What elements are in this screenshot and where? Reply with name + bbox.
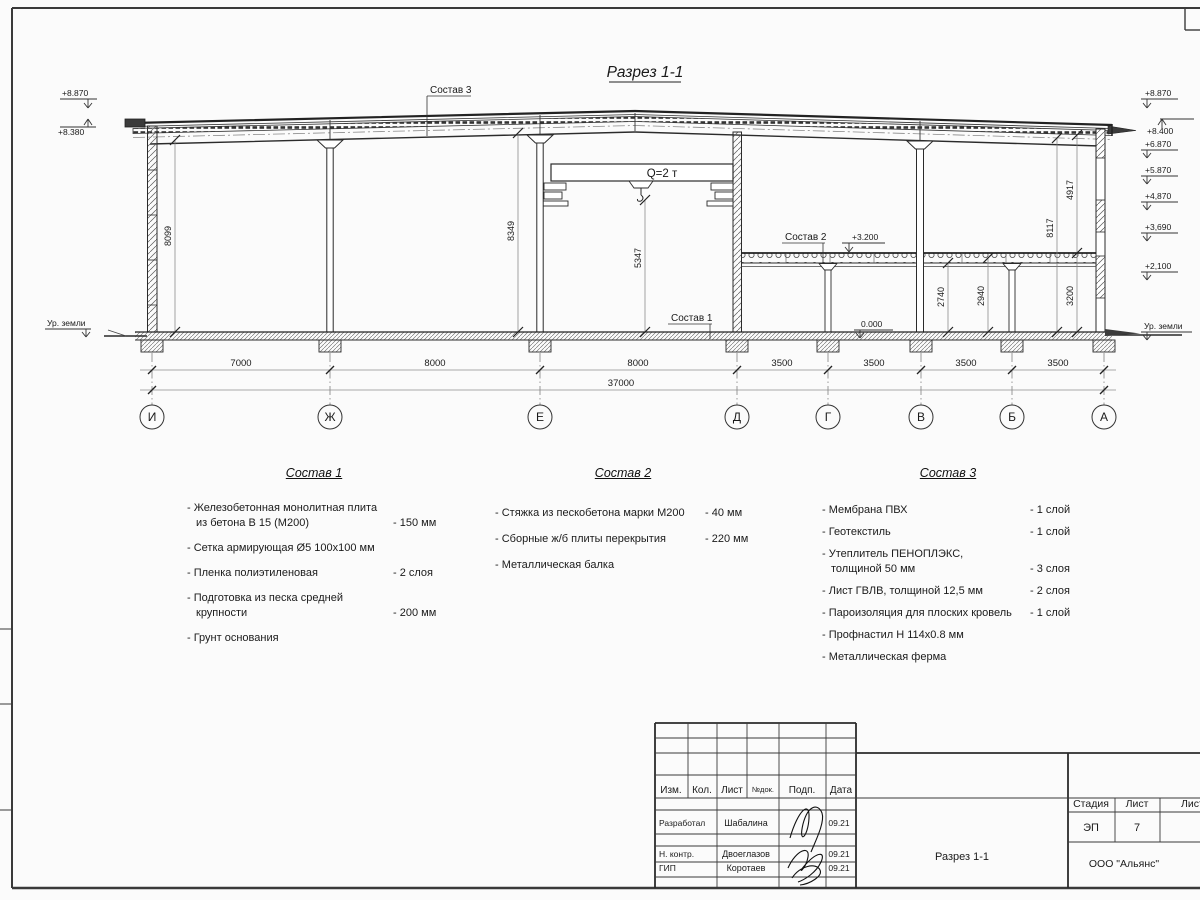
axis-label-e: Е — [536, 410, 544, 424]
elevation-marks-left: +8.870 +8.380 Ур. земли — [45, 88, 97, 337]
wall-axis-d — [733, 132, 742, 332]
axis-label-i: И — [148, 410, 157, 424]
crane-capacity-label: Q=2 т — [647, 168, 678, 180]
stamp-header-row: Изм. Кол. Лист №док. Подп. Дата — [660, 785, 852, 796]
section-view: Разрез 1-1 — [45, 64, 1194, 429]
stamp-doc-title: Разрез 1-1 — [935, 851, 989, 863]
signature-developer — [790, 807, 823, 852]
stamp-role-ncontrol: Н. контр. — [659, 849, 694, 859]
list-item: - Профнастил Н 114х0.8 мм — [820, 628, 1076, 643]
column-axis-v — [917, 149, 924, 332]
axis-label-v: В — [917, 410, 925, 424]
vertical-dimensions: 8099 8349 5347 2740 2940 3200 8117 4917 — [163, 128, 1082, 337]
list-item: - Металлическая балка — [493, 558, 753, 573]
mark-left-8870: +8.870 — [62, 88, 89, 98]
column-axis-zh — [327, 148, 333, 332]
mark-right-8870: +8.870 — [1145, 88, 1172, 98]
axis-label-b: Б — [1008, 410, 1016, 424]
dim-8349: 8349 — [506, 221, 516, 241]
axis-bubbles — [140, 405, 1116, 429]
dim-3200: 3200 — [1065, 286, 1075, 306]
foundation-pads — [141, 340, 1115, 352]
stamp-date-ncontrol: 09.21 — [828, 849, 850, 859]
floor — [104, 329, 1182, 352]
corner-box — [1185, 8, 1200, 30]
dim-4917: 4917 — [1065, 180, 1075, 200]
mark-floor-0000: 0.000 — [861, 319, 883, 329]
mark-left-8380: +8.380 — [58, 127, 85, 137]
roof — [125, 111, 1136, 146]
stamp-col-list: Лист — [721, 785, 743, 796]
composition-list-2: Состав 2 - Стяжка из пескобетона марки М… — [493, 466, 753, 573]
walls — [148, 126, 1106, 332]
span-total-37000: 37000 — [608, 378, 634, 389]
list-item: - Геотекстиль- 1 слой — [820, 525, 1076, 540]
list-item: - Утеплитель ПЕНОПЛЭКС, — [820, 547, 1076, 562]
dim-8099: 8099 — [163, 226, 173, 246]
mark-right-4870: +4,870 — [1145, 191, 1172, 201]
stamp-col-data: Дата — [830, 785, 853, 796]
axis-label-zh: Ж — [324, 410, 335, 424]
stamp-col-ndok: №док. — [752, 785, 774, 794]
stamp-company: ООО "Альянс" — [1089, 858, 1159, 870]
stamp-role-gip: ГИП — [659, 863, 676, 873]
mark-right-2100: +2,100 — [1145, 261, 1172, 271]
list-item: - Лист ГВЛВ, толщиной 12,5 мм- 2 слоя — [820, 584, 1076, 599]
mark-right-5870: +5.870 — [1145, 165, 1172, 175]
mark-right-8400: +8.400 — [1147, 126, 1174, 136]
stamp-sheets-label: Листов — [1181, 798, 1200, 810]
signature-ncontrol-gip — [788, 850, 822, 885]
stamp-stage-value: ЭП — [1083, 822, 1099, 834]
page-title: Разрез 1-1 — [607, 64, 684, 81]
stamp-name-ncontrol: Двоеглазов — [722, 849, 770, 859]
wall-axis-i — [148, 126, 158, 332]
dimension-chain: 7000 8000 8000 3500 3500 3500 3500 37000… — [140, 353, 1116, 429]
stamp-date-gip: 09.21 — [828, 863, 850, 873]
list-item: - Металлическая ферма — [820, 650, 1076, 665]
span-8000-1: 8000 — [424, 358, 445, 369]
callout-sostav-2: Состав 2 — [785, 232, 827, 243]
span-3500-3: 3500 — [955, 358, 976, 369]
stamp-col-izm: Изм. — [660, 785, 681, 796]
list-item: - Стяжка из пескобетона марки М200- 40 м… — [493, 506, 753, 521]
dim-2740: 2740 — [936, 287, 946, 307]
mark-slab-3200: +3.200 — [852, 232, 879, 242]
list-item: из бетона В 15 (М200)- 150 мм — [185, 516, 443, 531]
span-3500-1: 3500 — [771, 358, 792, 369]
mark-left-ground: Ур. земли — [47, 318, 86, 328]
list-item: - Железобетонная монолитная плита — [185, 501, 443, 516]
list-item: крупности- 200 мм — [185, 606, 443, 621]
list-item: - Грунт основания — [185, 631, 443, 646]
stamp-col-kol: Кол. — [692, 785, 712, 796]
stamp-date-developer: 09.21 — [828, 818, 850, 828]
stamp-sheet-label: Лист — [1126, 798, 1149, 810]
stamp-role-developer: Разработал — [659, 818, 705, 828]
stamp-name-gip: Коротаев — [727, 863, 766, 873]
span-7000: 7000 — [230, 358, 251, 369]
list-item: - Мембрана ПВХ- 1 слой — [820, 503, 1076, 518]
axis-label-a: А — [1100, 410, 1108, 424]
dim-5347: 5347 — [633, 248, 643, 268]
column-axis-b — [1009, 270, 1015, 332]
stamp-name-developer: Шабалина — [724, 818, 767, 828]
elevation-marks-internal: +3.200 0.000 — [842, 232, 893, 338]
drawing-sheet: Разрез 1-1 — [0, 0, 1200, 900]
mark-right-3690: +3,690 — [1145, 222, 1172, 232]
sheet-frame — [0, 8, 1200, 888]
composition-list-1: Состав 1 - Железобетонная монолитная пли… — [185, 466, 443, 646]
list-item: - Сборные ж/б плиты перекрытия- 220 мм — [493, 532, 753, 547]
composition-2-title: Состав 2 — [493, 466, 753, 481]
list-item: - Пленка полиэтиленовая- 2 слоя — [185, 566, 443, 581]
composition-list-3: Состав 3 - Мембрана ПВХ- 1 слой - Геотек… — [820, 466, 1076, 665]
callout-sostav-3: Состав 3 — [430, 85, 472, 96]
column-axis-e — [537, 143, 543, 332]
elevation-marks-right: +8.870 +8.400 +6.870 +5.870 +4,870 +3,69… — [1141, 88, 1194, 340]
list-item: - Сетка армирующая Ø5 100х100 мм — [185, 541, 443, 556]
axis-label-d: Д — [733, 410, 741, 424]
crane-beam: Q=2 т — [542, 164, 733, 206]
axis-label-g: Г — [825, 410, 832, 424]
callout-sostav-1: Состав 1 — [671, 313, 713, 324]
list-item: - Подготовка из песка средней — [185, 591, 443, 606]
title-block: Изм. Кол. Лист №док. Подп. Дата Разработ… — [655, 723, 1200, 888]
mark-right-ground: Ур. земли — [1144, 321, 1183, 331]
section-linework: Разрез 1-1 — [0, 0, 1200, 900]
stamp-sheet-value: 7 — [1134, 822, 1140, 834]
composition-3-title: Состав 3 — [820, 466, 1076, 481]
composition-1-title: Состав 1 — [185, 466, 443, 481]
stamp-stage-label: Стадия — [1073, 798, 1109, 810]
mark-right-6870: +6.870 — [1145, 139, 1172, 149]
span-3500-2: 3500 — [863, 358, 884, 369]
list-item: толщиной 50 мм- 3 слоя — [820, 562, 1076, 577]
dim-2940: 2940 — [976, 286, 986, 306]
list-item: - Пароизоляция для плоских кровель- 1 сл… — [820, 606, 1076, 621]
column-axis-g — [825, 270, 831, 332]
dim-8117: 8117 — [1045, 218, 1055, 237]
stamp-col-podp: Подп. — [789, 785, 816, 796]
span-8000-2: 8000 — [627, 358, 648, 369]
span-3500-4: 3500 — [1047, 358, 1068, 369]
